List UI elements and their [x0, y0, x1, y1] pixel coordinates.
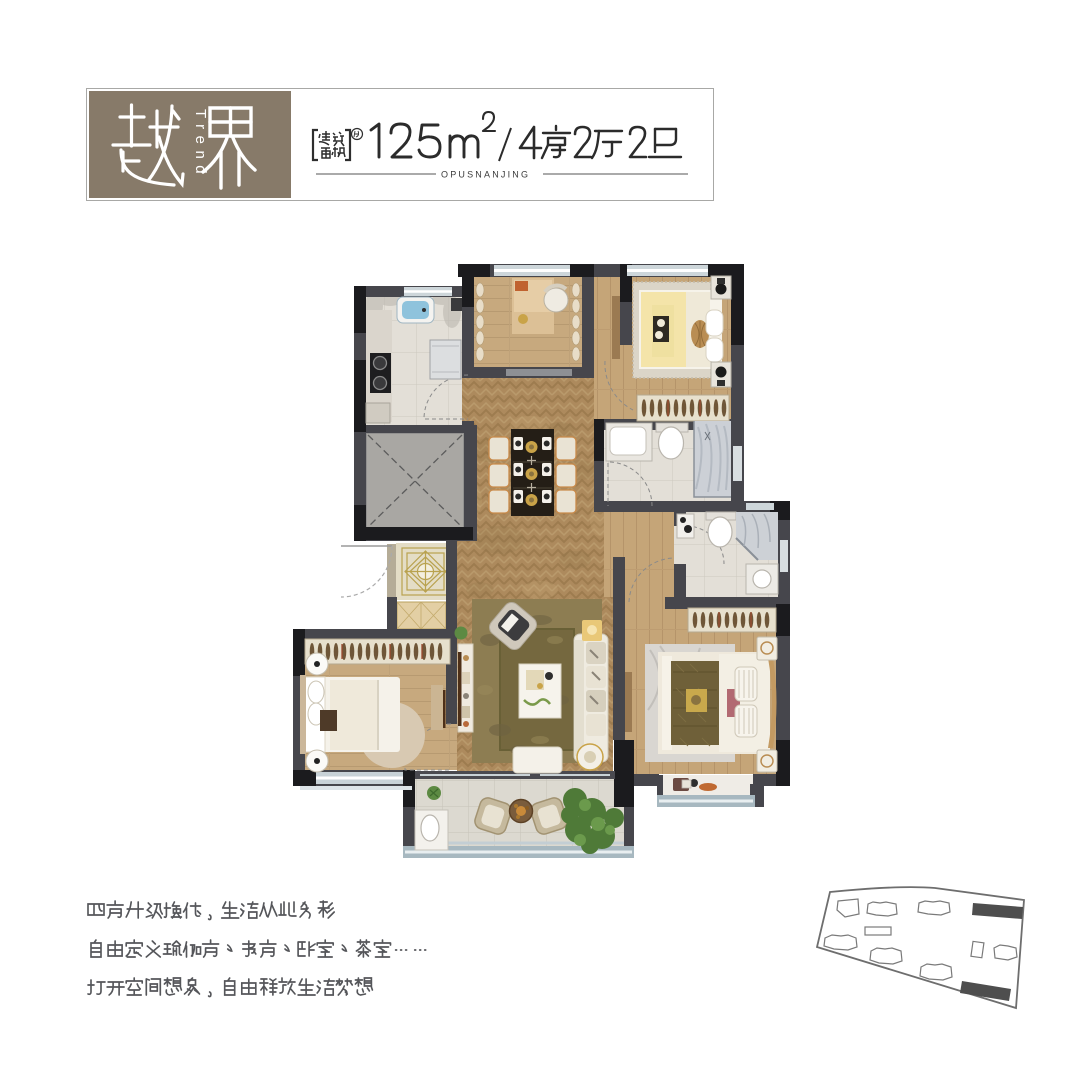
- svg-text:Trend: Trend: [192, 109, 209, 180]
- svg-text:OPUSNANJING: OPUSNANJING: [441, 170, 530, 180]
